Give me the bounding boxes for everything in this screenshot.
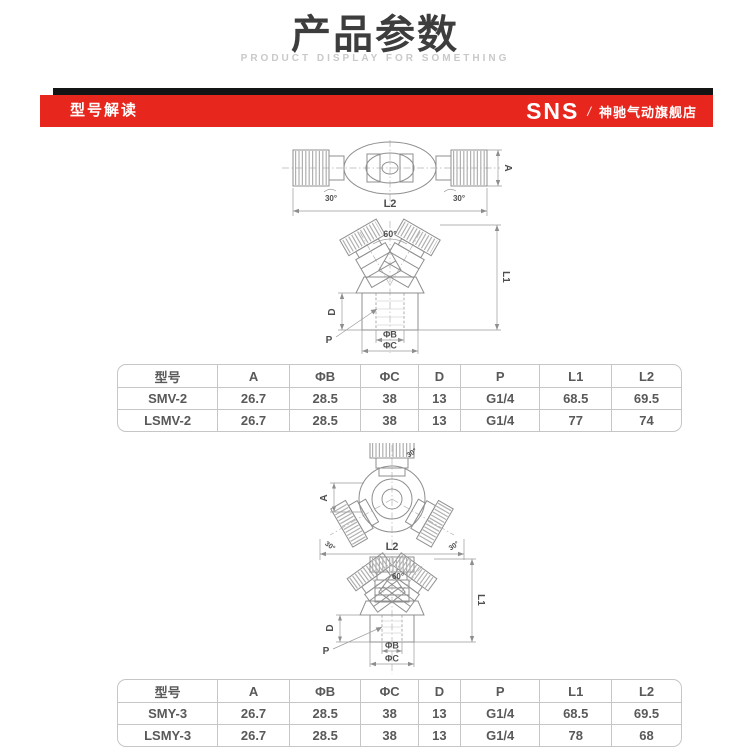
cell: 78 <box>540 725 612 746</box>
page-title: 产品参数 <box>0 2 750 60</box>
dim-label-l1: L1 <box>475 594 486 606</box>
cell: LSMY-3 <box>118 725 218 746</box>
col-header-p: P <box>461 680 540 703</box>
table-row: SMY-3 26.7 28.5 38 13 G1/4 68.5 69.5 <box>118 703 681 725</box>
col-header-phi-c: ΦC <box>361 365 418 388</box>
col-header-phi-b: ΦB <box>290 680 362 703</box>
spec-table-smy3: 型号 A ΦB ΦC D P L1 L2 SMY-3 26.7 28.5 38 … <box>117 679 682 747</box>
dim-label-d: D <box>327 308 338 315</box>
cell: SMY-3 <box>118 703 218 725</box>
cell: SMV-2 <box>118 388 218 410</box>
col-header-l1: L1 <box>540 680 612 703</box>
diagram2-front-view: 60° D P ΦB ΦC L1 <box>323 553 486 674</box>
cell: 38 <box>361 388 418 410</box>
dim-label-l2: L2 <box>384 198 397 210</box>
spec-table-smv2: 型号 A ΦB ΦC D P L1 L2 SMV-2 26.7 28.5 38 … <box>117 364 682 432</box>
col-header-d: D <box>419 680 461 703</box>
cell: 68.5 <box>540 703 612 725</box>
cell: LSMV-2 <box>118 410 218 431</box>
col-header-d: D <box>419 365 461 388</box>
cell: 13 <box>419 388 461 410</box>
col-header-a: A <box>218 365 290 388</box>
cell: 13 <box>419 725 461 746</box>
brand-logo-text: SNS <box>526 98 579 125</box>
cell: 26.7 <box>218 725 290 746</box>
col-header-l2: L2 <box>612 365 681 388</box>
section-title: 型号解读 <box>70 95 138 127</box>
col-header-l2: L2 <box>612 680 681 703</box>
cell: 68.5 <box>540 388 612 410</box>
diagram2-top-view: 30° A 30° 30° L2 <box>319 443 464 560</box>
cell: 69.5 <box>612 388 681 410</box>
diagram-smy3-drawing: 30° A 30° 30° L2 60° D P ΦB ΦC L1 <box>276 443 514 677</box>
dim-label-phi-b: ΦB <box>383 330 397 340</box>
cell: G1/4 <box>461 388 540 410</box>
header-black-stripe <box>53 88 713 95</box>
col-header-model: 型号 <box>118 680 218 703</box>
dim-label-l2: L2 <box>386 541 399 553</box>
angle-label-30-right: 30° <box>453 194 465 203</box>
col-header-model: 型号 <box>118 365 218 388</box>
cell: 28.5 <box>290 703 362 725</box>
cell: G1/4 <box>461 703 540 725</box>
angle-label-60: 60° <box>392 572 404 581</box>
section-header-bar: 型号解读 SNS / 神驰气动旗舰店 <box>40 95 713 127</box>
dim-label-d: D <box>325 624 336 631</box>
cell: 77 <box>540 410 612 431</box>
table-row: SMV-2 26.7 28.5 38 13 G1/4 68.5 69.5 <box>118 388 681 410</box>
page-subtitle: PRODUCT DISPLAY FOR SOMETHING <box>0 53 750 64</box>
dim-label-phi-b: ΦB <box>385 641 399 651</box>
col-header-p: P <box>461 365 540 388</box>
col-header-phi-b: ΦB <box>290 365 362 388</box>
cell: 26.7 <box>218 410 290 431</box>
table-header-row: 型号 A ΦB ΦC D P L1 L2 <box>118 680 681 703</box>
cell: G1/4 <box>461 725 540 746</box>
dim-label-p: P <box>326 335 333 346</box>
diagram1-top-view: A 30° 30° L2 <box>282 140 512 216</box>
table-header-row: 型号 A ΦB ΦC D P L1 L2 <box>118 365 681 388</box>
cell: 74 <box>612 410 681 431</box>
cell: 38 <box>361 703 418 725</box>
cell: G1/4 <box>461 410 540 431</box>
cell: 26.7 <box>218 388 290 410</box>
dim-label-l1: L1 <box>500 271 511 283</box>
angle-label-60: 60° <box>383 229 397 239</box>
cell: 28.5 <box>290 410 362 431</box>
table-row: LSMY-3 26.7 28.5 38 13 G1/4 78 68 <box>118 725 681 746</box>
dim-label-phi-c: ΦC <box>385 654 399 664</box>
diagram-smv2-drawing: A 30° 30° L2 60° D P ΦB ΦC L1 <box>272 137 512 355</box>
dim-label-phi-c: ΦC <box>383 341 397 351</box>
cell: 13 <box>419 410 461 431</box>
dim-label-p: P <box>323 646 330 657</box>
store-name: 神驰气动旗舰店 <box>599 102 697 121</box>
dim-label-a: A <box>502 164 512 171</box>
col-header-a: A <box>218 680 290 703</box>
cell: 28.5 <box>290 388 362 410</box>
angle-label-30-top: 30° <box>405 447 418 460</box>
col-header-l1: L1 <box>540 365 612 388</box>
angle-label-30-right: 30° <box>447 540 460 553</box>
cell: 13 <box>419 703 461 725</box>
cell: 68 <box>612 725 681 746</box>
diagram1-front-view: 60° D P ΦB ΦC L1 <box>326 219 511 354</box>
cell: 26.7 <box>218 703 290 725</box>
cell: 38 <box>361 725 418 746</box>
cell: 28.5 <box>290 725 362 746</box>
col-header-phi-c: ΦC <box>361 680 418 703</box>
brand-separator: / <box>587 104 591 119</box>
dim-label-a: A <box>319 494 330 501</box>
angle-label-30-left: 30° <box>323 540 336 553</box>
angle-label-30-left: 30° <box>325 194 337 203</box>
cell: 38 <box>361 410 418 431</box>
cell: 69.5 <box>612 703 681 725</box>
brand-area: SNS / 神驰气动旗舰店 <box>526 95 697 127</box>
table-row: LSMV-2 26.7 28.5 38 13 G1/4 77 74 <box>118 410 681 431</box>
